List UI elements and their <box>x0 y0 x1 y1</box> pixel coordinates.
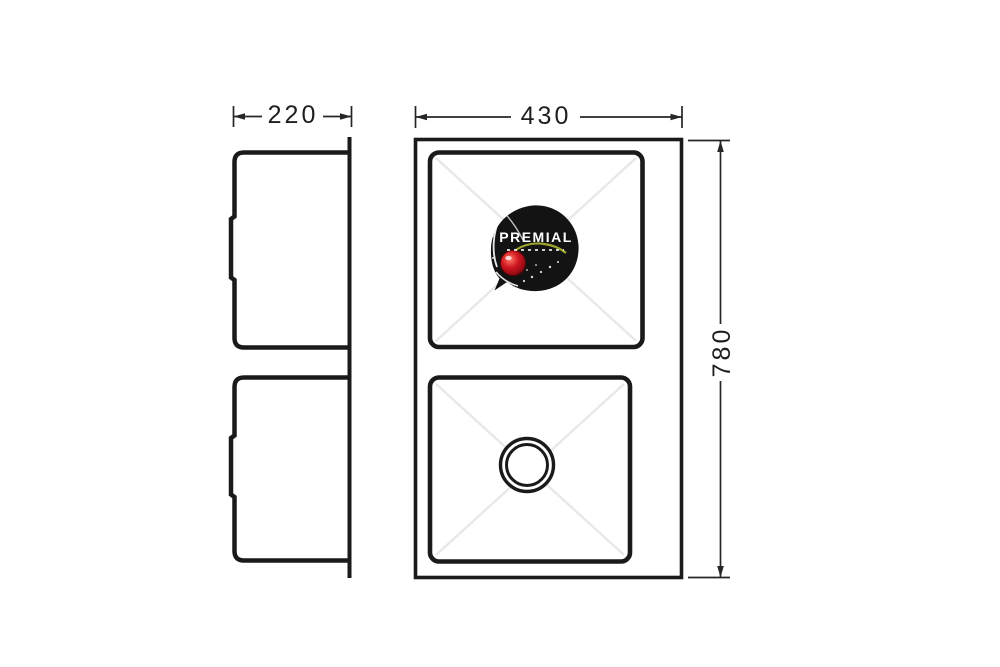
arrowhead-right-icon <box>671 114 683 121</box>
arrowhead-left-icon <box>416 114 428 121</box>
side-view <box>231 137 351 578</box>
brand-tagline-dashes <box>507 249 564 251</box>
dimension-depth-label: 220 <box>261 102 325 128</box>
front-view <box>416 140 682 578</box>
brand-name-label: PREMIAL <box>496 230 576 245</box>
arrowhead-up-icon <box>717 141 724 153</box>
side-view-upper-bowl-profile <box>231 153 351 348</box>
arrowhead-left-icon <box>234 113 246 120</box>
arrowhead-down-icon <box>717 566 724 578</box>
dimension-height-label: 780 <box>709 320 735 384</box>
cherry-icon <box>501 251 526 276</box>
technical-drawing-canvas: 220 430 780 PREMIAL <box>0 0 1000 667</box>
sink-dimension-drawing <box>0 0 1000 667</box>
side-view-lower-bowl-profile <box>231 378 351 561</box>
arrowhead-right-icon <box>340 113 352 120</box>
dimension-width-label: 430 <box>512 103 580 129</box>
cherry-highlight <box>505 256 511 260</box>
drain-inner-ring <box>507 445 548 486</box>
